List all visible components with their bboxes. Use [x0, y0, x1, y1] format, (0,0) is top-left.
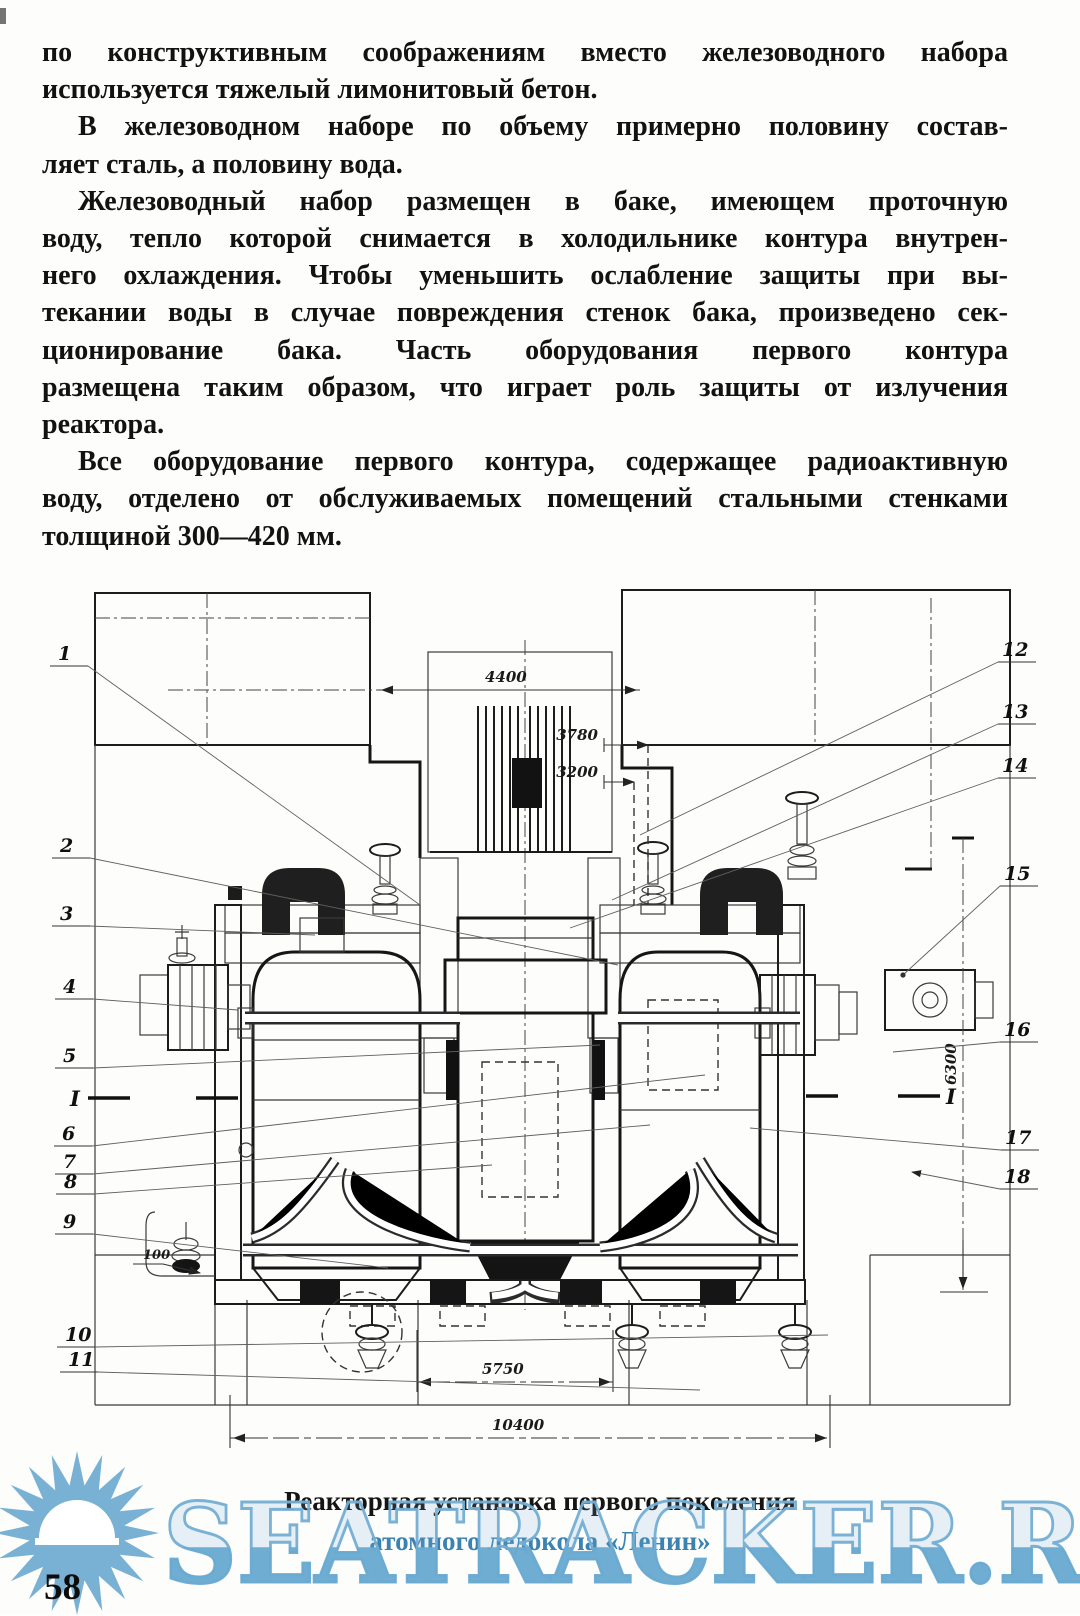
text-line: воду, тепло которой снимается в холодиль…: [42, 220, 1008, 257]
text-line: него охлаждения. Чтобы уменьшить ослабле…: [42, 257, 1008, 294]
text-line: реактора.: [42, 406, 1008, 443]
callout-6: 6: [62, 1123, 75, 1145]
reactor-cross-section-figure: I I 4400 3780 3200 6300: [0, 555, 1080, 1450]
scan-artifact: [0, 8, 6, 24]
dim-height-upper: 3780: [556, 726, 598, 744]
bottom-structure: [146, 1212, 811, 1372]
callout-16: 16: [1004, 1019, 1030, 1041]
callout-4: 4: [63, 976, 76, 998]
callout-17: 17: [1005, 1127, 1031, 1149]
callout-10: 10: [65, 1324, 91, 1346]
callout-14: 14: [1002, 755, 1028, 777]
dim-top-width: 4400: [485, 668, 527, 686]
text-line: размещена таким образом, что играет роль…: [42, 369, 1008, 406]
callout-12: 12: [1002, 639, 1028, 661]
text-line: используется тяжелый лимонитовый бетон.: [42, 71, 1008, 108]
primary-piping: [243, 1018, 800, 1250]
callout-3: 3: [60, 903, 73, 925]
text-line: ляет сталь, а половину вода.: [42, 146, 1008, 183]
dim-right-height: 6300: [942, 1043, 960, 1085]
text-line: Все оборудование первого контура, содерж…: [42, 443, 1008, 480]
dim-small-offset: 100: [143, 1248, 170, 1263]
book-page: по конструктивным соображениям вместо же…: [0, 0, 1080, 1615]
callout-7: 7: [63, 1151, 76, 1173]
hull-outline: [95, 590, 1010, 1405]
dim-bottom-inner: 5750: [482, 1360, 524, 1378]
callout-8: 8: [63, 1171, 77, 1193]
section-mark-right: I: [945, 1084, 957, 1109]
text-line: толщиной 300—420 мм.: [42, 518, 1008, 555]
callout-13: 13: [1002, 701, 1028, 723]
callout-18: 18: [1004, 1166, 1030, 1188]
callout-1: 1: [58, 643, 71, 665]
text-line: ционирование бака. Часть оборудования пе…: [42, 332, 1008, 369]
page-number: 58: [44, 1566, 81, 1609]
text-line: по конструктивным соображениям вместо же…: [42, 34, 1008, 71]
shield-structure: [215, 858, 804, 1280]
callout-9: 9: [63, 1211, 76, 1233]
figure-caption-line2: атомного ледокола «Ленин»: [15, 1526, 1065, 1557]
dim-height-lower: 3200: [556, 763, 598, 781]
text-line: Железоводный набор размещен в баке, имею…: [42, 183, 1008, 220]
text-line: воду, отделено от обслуживаемых помещени…: [42, 480, 1008, 517]
text-line: В железоводном наборе по объему примерно…: [42, 108, 1008, 145]
callout-2: 2: [59, 835, 73, 857]
body-text: по конструктивным соображениям вместо же…: [42, 34, 1008, 555]
section-mark-left: I: [69, 1086, 81, 1111]
dimension-lines: 4400 3780 3200 6300 5750: [133, 668, 988, 1448]
left-steam-generator: [140, 918, 420, 1300]
callout-15: 15: [1004, 863, 1030, 885]
figure-caption-line1: Реакторная установка первого поколения: [15, 1486, 1065, 1517]
dim-bottom-outer: 10400: [492, 1416, 545, 1434]
callout-11: 11: [68, 1349, 94, 1371]
callout-5: 5: [63, 1045, 76, 1067]
text-line: текании воды в случае повреждения стенок…: [42, 294, 1008, 331]
